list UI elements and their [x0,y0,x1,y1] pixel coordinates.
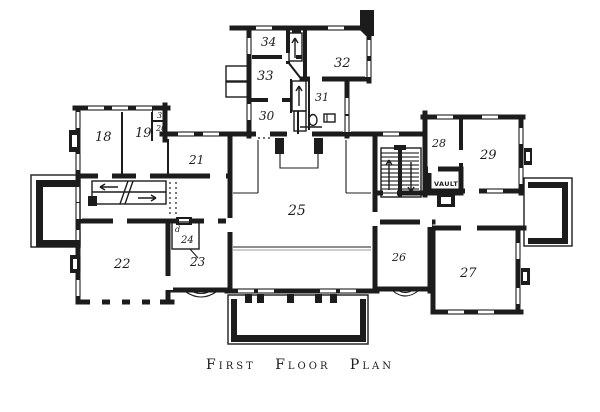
porches [31,175,572,344]
room-label-24: 24 [180,235,194,246]
room-label-18: 18 [95,130,112,145]
walls [75,10,524,312]
room-label-23: 23 [189,255,206,269]
room-label-31: 31 [315,91,329,104]
door-openings [98,53,479,290]
room-label-32: 32 [334,56,351,71]
vault-label: VAULT [434,180,458,188]
floor-plan-figure: 18 19 30 20 21 22 23 24 d 25 26 27 28 29… [0,0,600,412]
room-label-28: 28 [431,137,446,150]
room-label-29: 29 [479,148,497,163]
room-label-33: 33 [257,69,274,84]
room-label-21: 21 [188,153,204,167]
closet-label-lower: 20 [155,124,166,133]
room-label-22: 22 [113,257,131,272]
bath-fixtures [298,112,335,133]
room-label-26: 26 [391,251,406,264]
door-mark-d: d [175,225,180,234]
closet-label-upper: 30 [157,111,167,120]
room-label-27: 27 [459,266,477,281]
room-label-25: 25 [287,203,306,219]
floor-plan-canvas: 18 19 30 20 21 22 23 24 d 25 26 27 28 29… [0,0,600,412]
room-label-30: 30 [259,109,275,123]
room-label-34: 34 [261,35,276,49]
room-label-19: 19 [135,126,152,141]
figure-caption: First Floor Plan [206,357,394,373]
